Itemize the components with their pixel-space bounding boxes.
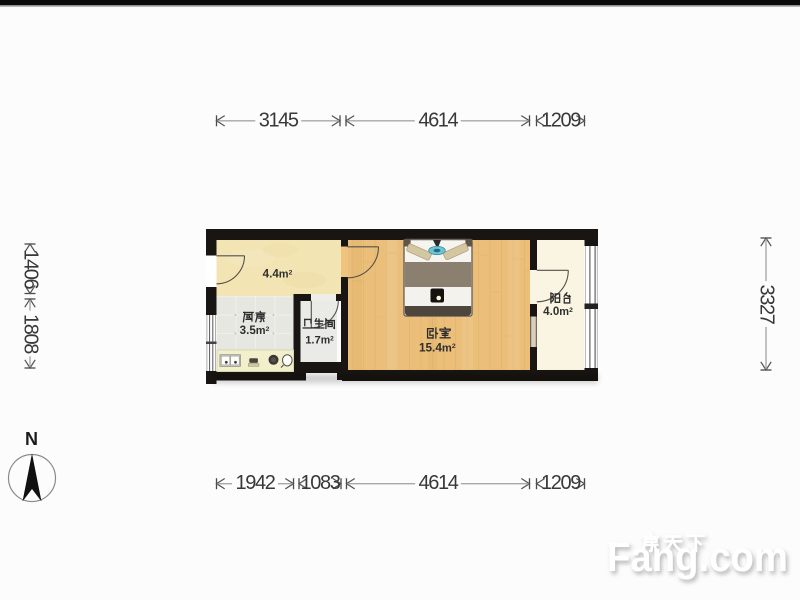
svg-text:3.5m2: 3.5m2 [240,324,270,337]
svg-text:1.7m2: 1.7m2 [305,335,334,347]
svg-text:1942: 1942 [236,472,276,494]
svg-text:1406: 1406 [19,249,41,289]
svg-text:4614: 4614 [418,109,458,131]
svg-text:1083: 1083 [301,472,341,494]
svg-text:4.0m2: 4.0m2 [543,305,573,318]
svg-text:Fang.com: Fang.com [607,533,788,580]
svg-text:3145: 3145 [259,109,299,131]
svg-text:4614: 4614 [419,472,459,494]
svg-text:15.4m2: 15.4m2 [419,340,456,354]
svg-text:1209: 1209 [541,109,581,131]
svg-text:3327: 3327 [756,285,778,325]
svg-text:1209: 1209 [541,472,581,494]
svg-text:N: N [25,429,38,449]
svg-text:4.4m2: 4.4m2 [263,268,293,281]
svg-text:1808: 1808 [20,314,42,354]
